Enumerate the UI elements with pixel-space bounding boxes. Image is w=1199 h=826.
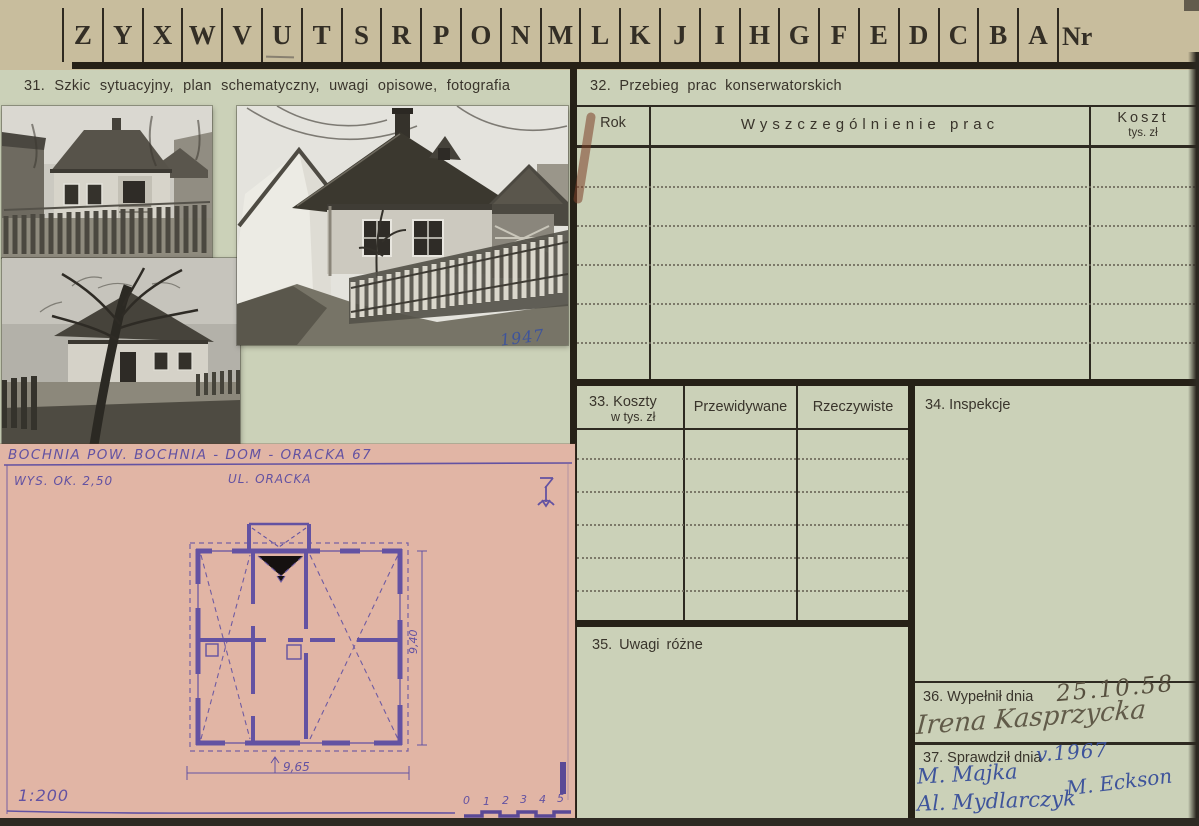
plan-diagonals xyxy=(201,555,398,739)
index-letter: P xyxy=(420,8,460,62)
plan-porch xyxy=(249,524,309,551)
scale-number: 0 xyxy=(463,794,470,807)
plan-scale-label: 1:200 xyxy=(18,786,69,805)
s33-col-divider-1 xyxy=(683,386,685,622)
index-letter: M xyxy=(540,8,580,62)
s33-title-line2: w tys. zł xyxy=(611,410,655,424)
s32-bottom-rule xyxy=(577,379,1199,386)
scan-edge-bottom xyxy=(0,818,1199,826)
photo3-dormer-window xyxy=(438,148,450,160)
s33-row-line xyxy=(577,590,908,592)
photo-house-corner xyxy=(237,106,568,345)
section31-title: 31. Szkic sytuacyjny, plan schematyczny,… xyxy=(24,78,510,94)
s32-col-koszt: Koszt xyxy=(1090,110,1196,126)
plan-sheet: BOCHNIA POW. BOCHNIA - DOM - ORACKA 67 W… xyxy=(0,444,575,826)
s33-row-line xyxy=(577,524,908,526)
s33-col-rzeczywiste: Rzeczywiste xyxy=(798,399,908,415)
s37-signature-2: Al. Mydlarczyk xyxy=(917,786,1076,816)
index-letter: A xyxy=(1017,8,1057,62)
north-arrow-icon xyxy=(538,478,554,506)
s32-col-divider-1 xyxy=(649,105,651,381)
index-letter: N xyxy=(500,8,540,62)
plan-title: BOCHNIA POW. BOCHNIA - DOM - ORACKA 67 xyxy=(8,447,372,463)
section35-title: 35. Uwagi różne xyxy=(592,637,703,653)
plan-stove xyxy=(287,645,301,659)
index-letter: X xyxy=(142,8,182,62)
section32-title: 32. Przebieg prac konserwatorskich xyxy=(590,78,842,94)
scan-edge-right xyxy=(1188,52,1199,826)
index-letter: H xyxy=(739,8,779,62)
s32-row-line xyxy=(577,225,1199,227)
plan-title-underline xyxy=(4,463,572,465)
s33-bottom-rule xyxy=(577,620,908,627)
index-letter: T xyxy=(301,8,341,62)
plan-openings xyxy=(194,547,404,747)
plan-partitions xyxy=(196,551,402,743)
s32-col-divider-2 xyxy=(1089,105,1091,381)
photo1-left-building xyxy=(2,140,44,228)
plan-dim-horizontal: 9,65 xyxy=(187,757,409,780)
index-letter: U xyxy=(261,8,301,62)
index-letter: I xyxy=(699,8,739,62)
s33-col-przewidywane: Przewidywane xyxy=(685,399,796,415)
s32-col-koszt-sub: tys. zł xyxy=(1090,127,1196,139)
scale-number: 3 xyxy=(520,793,527,806)
photo2-window xyxy=(178,352,192,370)
index-letter: J xyxy=(659,8,699,62)
plan-dim-width-label: 9,65 xyxy=(283,760,310,774)
photo-year-note: 1947 xyxy=(499,325,546,349)
photo1-window xyxy=(87,184,102,205)
plan-dashed-envelope xyxy=(190,543,408,751)
photo1-porch-opening xyxy=(123,181,145,203)
index-letter: S xyxy=(341,8,381,62)
photo1-window xyxy=(64,184,79,205)
plan-dim-height-label: 9,40 xyxy=(407,630,420,655)
photo1-eave xyxy=(50,169,172,173)
index-letter: L xyxy=(579,8,619,62)
section36-label: 36. Wypełnił dnia xyxy=(923,689,1033,705)
s32-row-line xyxy=(577,186,1199,188)
photo2-window xyxy=(154,352,168,370)
scan-corner-mark xyxy=(1184,0,1199,11)
photo-house-tree xyxy=(2,258,240,445)
photo3-eave xyxy=(327,204,492,210)
index-letter: E xyxy=(858,8,898,62)
index-letter: K xyxy=(619,8,659,62)
s32-row-line xyxy=(577,303,1199,305)
index-letter: O xyxy=(460,8,500,62)
plan-height-note: WYS. OK. 2,50 xyxy=(14,474,113,488)
index-letter: C xyxy=(938,8,978,62)
index-letter: Y xyxy=(102,8,142,62)
plan-outer-walls xyxy=(196,549,402,745)
index-strip: Z Y X W V U T S R P O N M L K J I H G F … xyxy=(62,8,1059,62)
s37-date-handwritten: v.1967 xyxy=(1035,738,1109,767)
index-letter: D xyxy=(898,8,938,62)
s32-row-line xyxy=(577,342,1199,344)
s32-col-prace: Wyszczególnienie prac xyxy=(650,116,1090,133)
record-card: Z Y X W V U T S R P O N M L K J I H G F … xyxy=(0,0,1199,826)
index-letter: V xyxy=(221,8,261,62)
s33-row-line xyxy=(577,491,908,493)
s33-col-divider-2 xyxy=(796,386,798,622)
s33-row-line xyxy=(577,458,908,460)
scale-number: 1 xyxy=(483,795,490,808)
s32-row-line xyxy=(577,264,1199,266)
plan-dim-vertical: 9,40 xyxy=(407,551,427,745)
photo3-chimney-cap xyxy=(392,108,413,114)
top-rule xyxy=(72,62,1199,69)
s33-title-line1: 33. Koszty xyxy=(589,394,657,410)
s37-signature-1: M. Majka xyxy=(916,759,1018,788)
index-letter: Z xyxy=(62,8,102,62)
plan-street-label: UL. ORACKA xyxy=(228,472,312,486)
s32-header-underline xyxy=(577,145,1199,148)
s34-left-divider xyxy=(908,386,915,826)
index-letter: F xyxy=(818,8,858,62)
index-letter: B xyxy=(977,8,1017,62)
s32-top-border xyxy=(577,105,1199,107)
plan-scale-bar: 0 1 2 3 4 5 xyxy=(463,792,571,816)
s33-row-line xyxy=(577,557,908,559)
photo2-door xyxy=(120,352,136,384)
s33-header-underline xyxy=(577,428,908,430)
s37-signature-3: M. Eckson xyxy=(1065,764,1173,801)
index-letter: W xyxy=(181,8,221,62)
scale-number: 4 xyxy=(539,793,546,806)
plan-stove xyxy=(206,644,218,656)
scale-number: 5 xyxy=(557,792,564,805)
scale-number: 2 xyxy=(502,794,509,807)
photo-house-front xyxy=(2,106,212,258)
plan-bottom-border xyxy=(7,811,455,813)
index-nr-label: Nr xyxy=(1062,22,1092,52)
section34-title: 34. Inspekcje xyxy=(925,397,1010,413)
index-letter: R xyxy=(380,8,420,62)
index-letter: G xyxy=(778,8,818,62)
